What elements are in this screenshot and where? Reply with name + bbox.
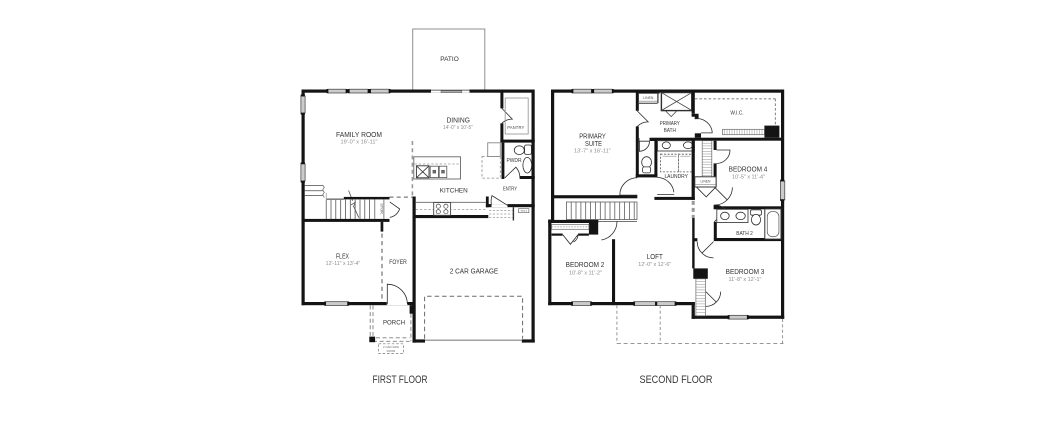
svg-text:PATIO: PATIO [440, 56, 459, 63]
svg-text:KITCHEN: KITCHEN [440, 187, 468, 194]
svg-text:12'-11" x 13'-4": 12'-11" x 13'-4" [326, 261, 361, 267]
svg-text:PORCH: PORCH [383, 320, 405, 327]
svg-text:FLEX: FLEX [336, 251, 349, 260]
svg-text:SECOND FLOOR: SECOND FLOOR [640, 374, 713, 386]
svg-text:FOYER: FOYER [389, 259, 407, 266]
svg-text:PRIMARY: PRIMARY [660, 121, 680, 127]
svg-text:BEDROOM 4: BEDROOM 4 [729, 164, 768, 173]
svg-text:10'-5" x 11'-4": 10'-5" x 11'-4" [732, 174, 765, 180]
svg-text:PWDR: PWDR [507, 158, 522, 164]
svg-text:LAUNDRY: LAUNDRY [664, 174, 688, 180]
svg-text:SUITE: SUITE [585, 139, 602, 148]
svg-text:FAMILY ROOM: FAMILY ROOM [336, 130, 382, 139]
svg-text:LOFT: LOFT [647, 252, 663, 261]
svg-text:13'-7" x 16'-11": 13'-7" x 16'-11" [574, 149, 611, 155]
svg-text:LINEN: LINEN [643, 96, 654, 100]
svg-text:12'-0" x 12'-6": 12'-0" x 12'-6" [638, 262, 671, 268]
svg-text:TNKLS: TNKLS [520, 211, 527, 213]
svg-text:10'-8" x 11'-2": 10'-8" x 11'-2" [569, 271, 602, 277]
svg-text:BATH: BATH [664, 128, 676, 134]
svg-text:19'-0" x 16'-11": 19'-0" x 16'-11" [341, 139, 378, 145]
svg-text:ENTRY: ENTRY [503, 186, 517, 192]
svg-text:LINEN: LINEN [701, 179, 712, 183]
svg-text:FIRST FLOOR: FIRST FLOOR [373, 374, 428, 386]
svg-text:W.I.C.: W.I.C. [730, 110, 744, 116]
svg-text:DINING: DINING [446, 116, 470, 125]
svg-text:11'-8" x 12'-1": 11'-8" x 12'-1" [729, 277, 762, 283]
svg-text:BATH 2: BATH 2 [736, 231, 753, 237]
svg-text:BEDROOM 3: BEDROOM 3 [726, 267, 765, 276]
svg-text:14'-0" x 10'-5": 14'-0" x 10'-5" [443, 125, 473, 131]
svg-text:STOR.: STOR. [380, 203, 384, 215]
svg-text:BEDROOM 2: BEDROOM 2 [566, 260, 605, 269]
svg-text:2 CAR GARAGE: 2 CAR GARAGE [450, 266, 499, 275]
svg-text:PANTRY: PANTRY [507, 125, 524, 130]
svg-text:DOOR: DOOR [387, 349, 396, 353]
